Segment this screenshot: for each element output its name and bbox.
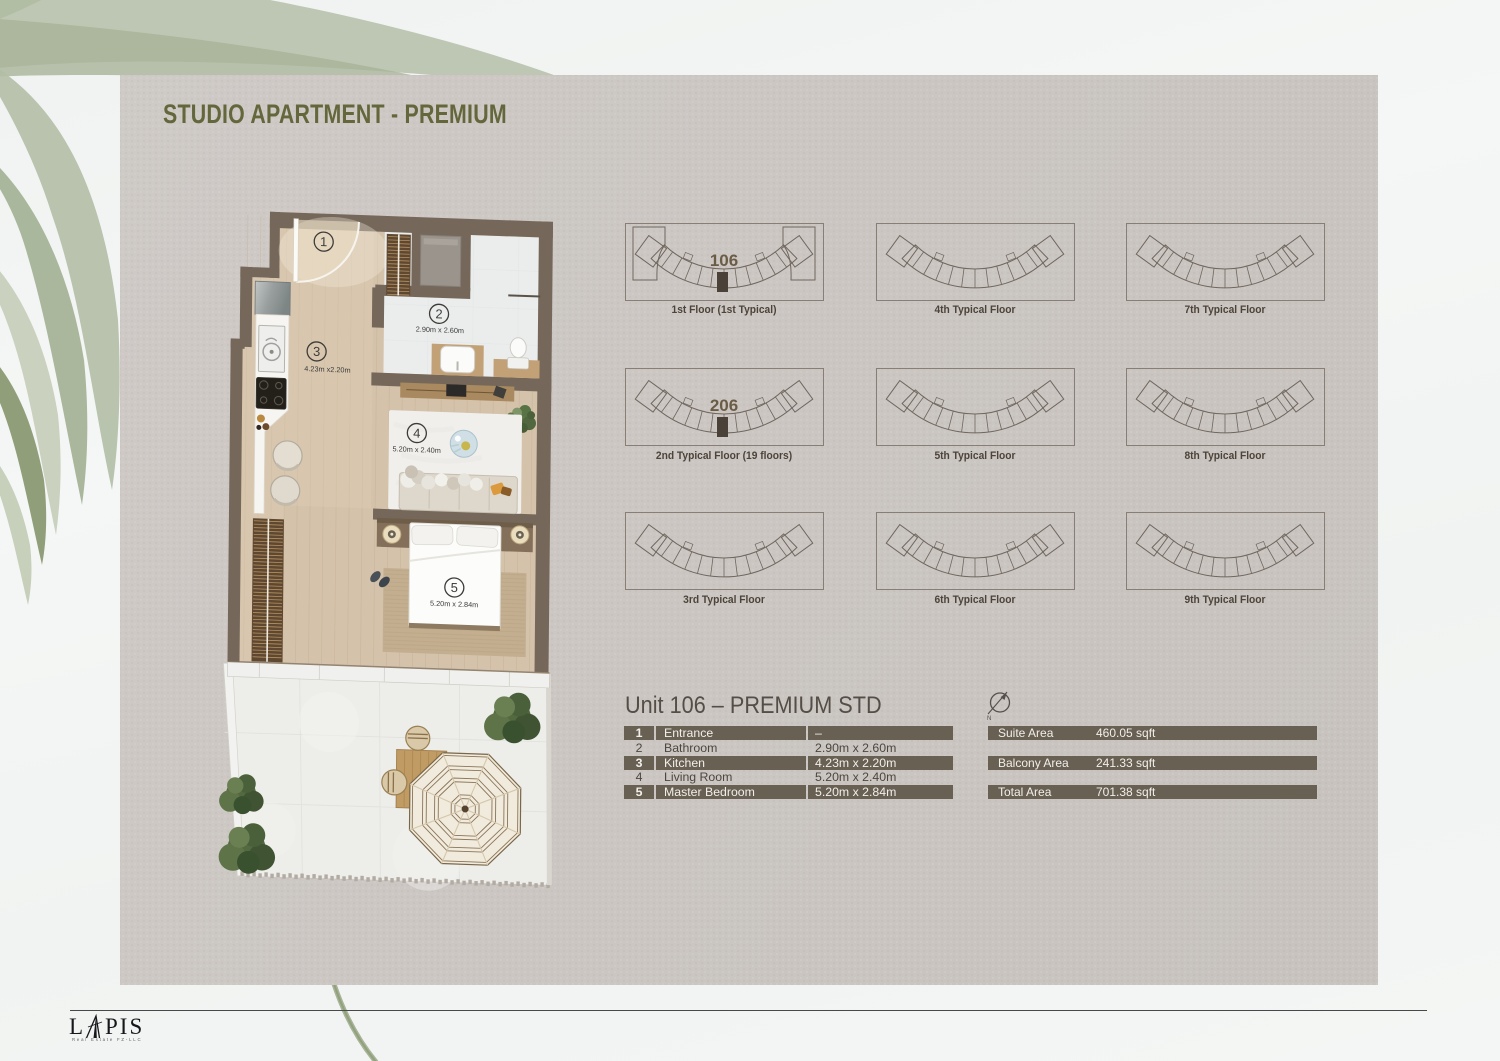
svg-text:N: N: [987, 716, 991, 722]
svg-text:5.20m x 2.84m: 5.20m x 2.84m: [430, 599, 478, 610]
svg-text:2.90m x 2.60m: 2.90m x 2.60m: [416, 325, 464, 336]
svg-text:2: 2: [435, 306, 442, 321]
svg-text:106: 106: [710, 251, 738, 270]
svg-text:4.23m x2.20m: 4.23m x2.20m: [304, 364, 350, 375]
svg-text:1: 1: [320, 234, 327, 249]
svg-text:5.20m x 2.40m: 5.20m x 2.40m: [393, 444, 441, 455]
svg-text:206: 206: [710, 396, 738, 415]
svg-text:4: 4: [413, 425, 420, 440]
svg-text:5: 5: [451, 580, 458, 595]
svg-text:3: 3: [313, 344, 320, 359]
